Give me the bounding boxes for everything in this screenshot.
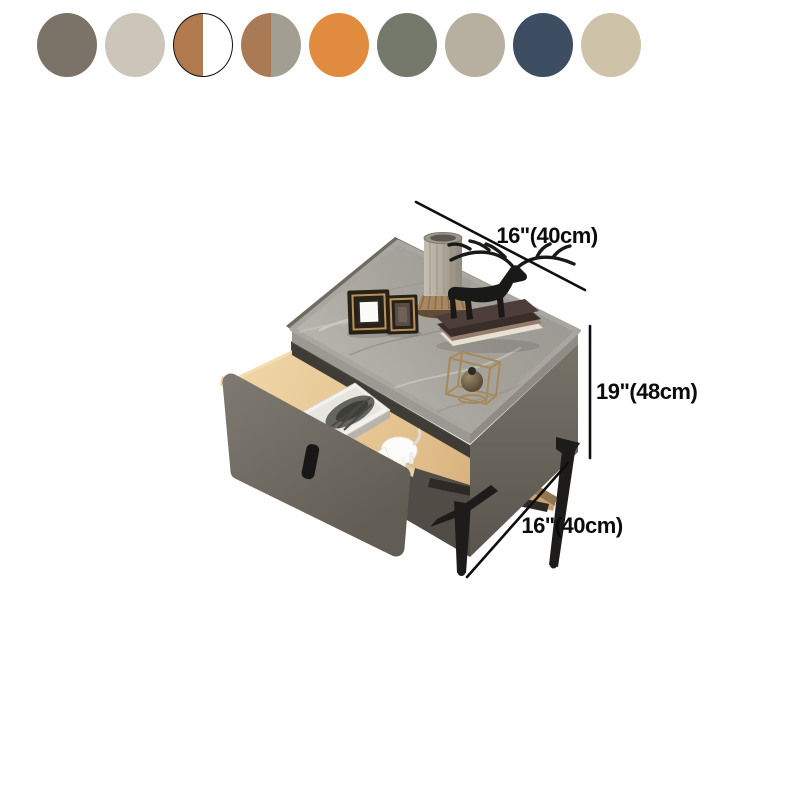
nightstand-illustration: 16"(40cm) 19"(48cm) 16"(40cm) [0, 0, 800, 800]
dimension-label-depth: 16"(40cm) [521, 513, 622, 538]
picture-frame-small [384, 294, 421, 338]
product-image-stage: 16"(40cm) 19"(48cm) 16"(40cm) [0, 0, 800, 800]
dimension-label-top-width: 16"(40cm) [496, 223, 597, 248]
dimension-label-height: 19"(48cm) [596, 379, 697, 404]
